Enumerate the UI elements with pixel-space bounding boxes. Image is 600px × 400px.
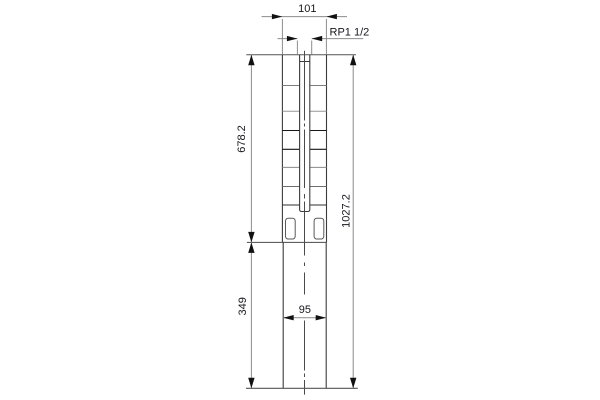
svg-text:RP1 1/2: RP1 1/2	[330, 26, 370, 38]
svg-text:101: 101	[298, 3, 316, 15]
svg-text:95: 95	[299, 304, 311, 316]
svg-text:678.2: 678.2	[236, 125, 248, 153]
svg-text:1027.2: 1027.2	[340, 194, 352, 228]
svg-text:349: 349	[237, 297, 249, 315]
